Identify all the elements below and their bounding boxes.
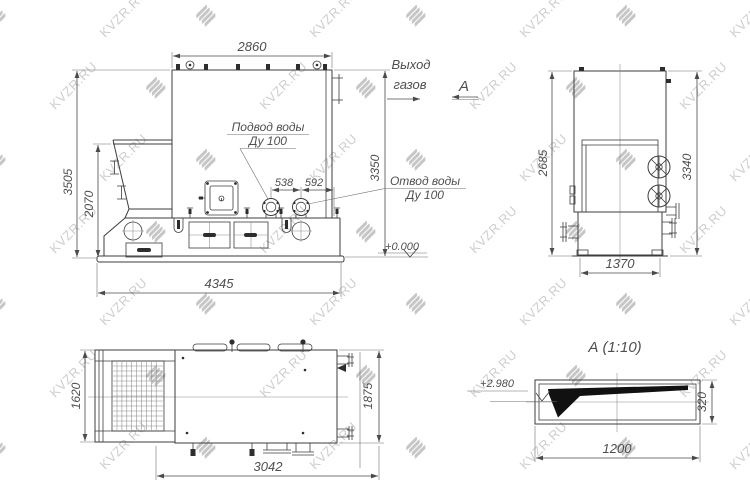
drawing-canvas: KVZR.RUKVZR.RUKVZR.RUKVZR.RUKVZR.RUKVZR.… [0, 0, 750, 500]
section-view: А (1:10) +2.980 1200 320 [467, 339, 717, 462]
front-view: 2860 3505 2070 3350 4345 538 592 Подвод … [61, 39, 479, 297]
section-wedge [548, 386, 688, 418]
plan-dim-right: 1875 [361, 382, 375, 409]
outlet-label-line1: Отвод воды [390, 174, 460, 188]
section-dim-bottom: 1200 [603, 441, 633, 456]
inlet-label-line2: Ду 100 [247, 134, 287, 148]
front-dim-right: 3350 [368, 154, 382, 181]
section-title: А (1:10) [587, 339, 641, 356]
front-dim-top: 2860 [237, 39, 268, 54]
front-dim-pipe-1: 538 [275, 177, 294, 189]
inlet-flange [263, 199, 280, 219]
front-dim-left-outer: 3505 [61, 168, 75, 195]
section-arrow-label: А [458, 78, 469, 95]
outlet-label-line2: Ду 100 [404, 188, 444, 202]
side-dim-left: 2685 [536, 149, 550, 177]
anchor-bolts [187, 208, 340, 218]
plan-view: 1620 1875 3042 [69, 339, 384, 480]
front-dim-pipe-2: 592 [305, 177, 323, 189]
inlet-label-line1: Подвод воды [232, 120, 305, 134]
inspection-hatch [198, 181, 238, 215]
gas-outlet-label-line2: газов [393, 77, 426, 92]
front-dim-left-inner: 2070 [82, 190, 96, 218]
technical-drawing: 2860 3505 2070 3350 4345 538 592 Подвод … [0, 0, 750, 500]
plan-dim-left: 1620 [69, 382, 83, 409]
section-level-mark: +2.980 [480, 378, 515, 390]
side-dim-bottom: 1370 [606, 256, 636, 271]
grate-assembly [95, 350, 175, 442]
valve-handwheel-top [648, 156, 670, 178]
section-dim-right: 320 [695, 392, 709, 412]
gas-outlet-label-line1: Выход [391, 57, 430, 72]
outlet-flange [293, 199, 310, 219]
valve-handwheel-bottom [648, 185, 670, 207]
plan-dim-bottom: 3042 [254, 459, 284, 474]
side-dim-right: 3340 [680, 153, 694, 180]
side-view: 2685 3340 1370 [536, 64, 702, 277]
front-dim-bottom: 4345 [205, 276, 235, 291]
